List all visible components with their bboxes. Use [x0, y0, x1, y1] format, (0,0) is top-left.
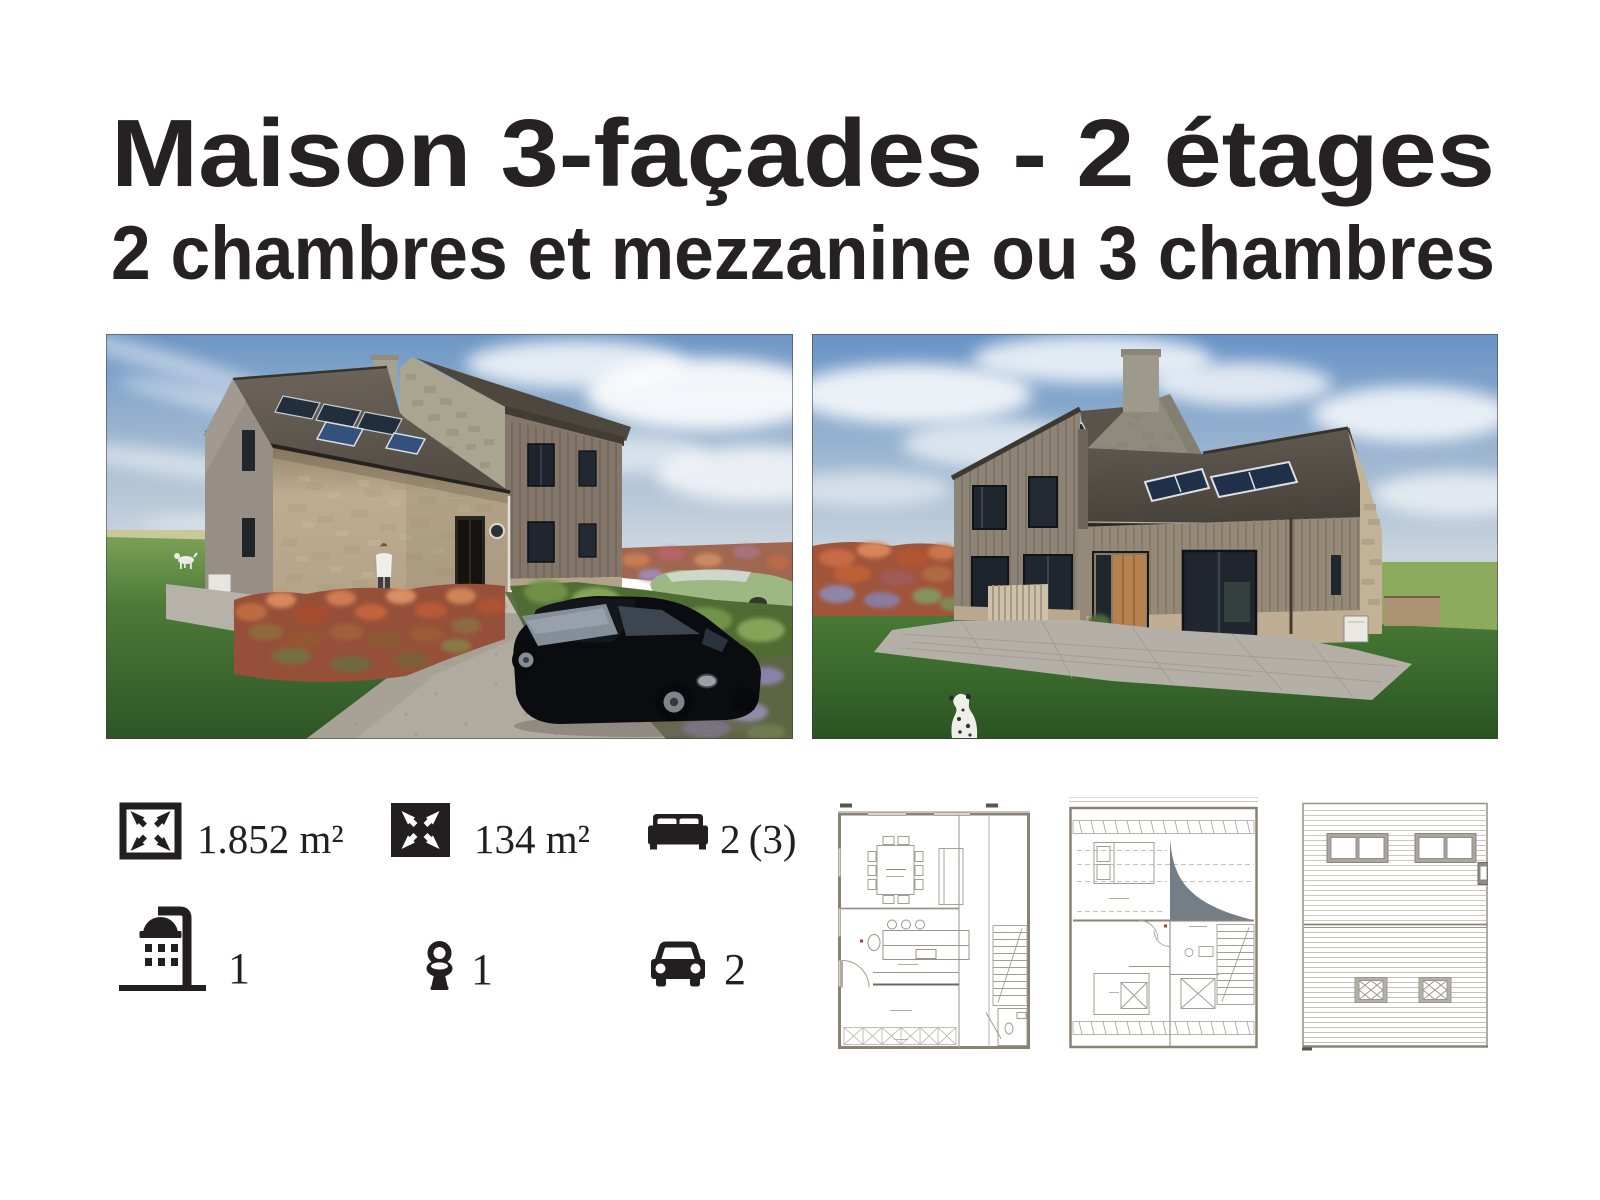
svg-text:134 m²: 134 m² [474, 816, 590, 862]
svg-text:2 chambres et mezzanine ou 3 c: 2 chambres et mezzanine ou 3 chambres [111, 211, 1495, 296]
svg-text:1.852 m²: 1.852 m² [197, 816, 344, 862]
svg-text:Maison 3-façades - 2 étages: Maison 3-façades - 2 étages [111, 100, 1495, 207]
svg-text:2: 2 [724, 945, 746, 994]
svg-text:2 (3): 2 (3) [720, 816, 797, 862]
svg-text:1: 1 [228, 944, 250, 993]
svg-text:1: 1 [471, 945, 493, 994]
